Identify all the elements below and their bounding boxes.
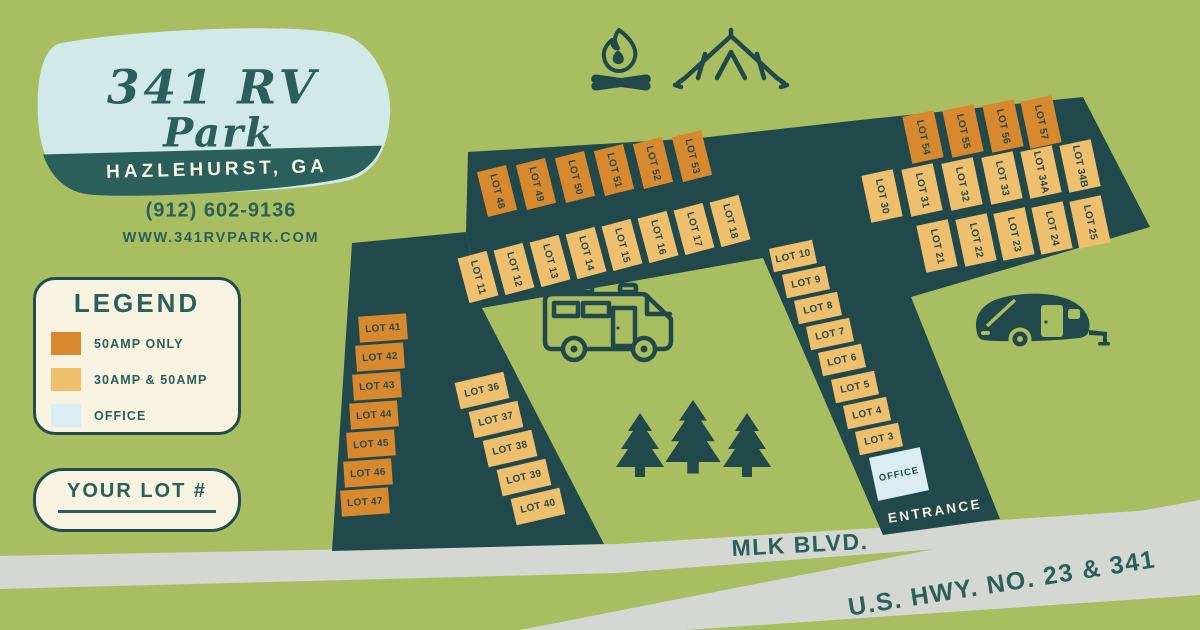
lot-lot-12: LOT 12 [494,243,535,295]
lot-label: LOT 21 [928,227,946,264]
lot-label: LOT 54 [914,118,932,155]
lot-label: LOT 51 [604,151,623,188]
lot-lot-55: LOT 55 [942,104,983,158]
lot-lot-41: LOT 41 [358,313,408,342]
lot-label: LOT 56 [994,107,1012,144]
lot-lot-9: LOT 9 [782,266,830,299]
lot-lot-45: LOT 45 [346,429,396,458]
lot-lot-17: LOT 17 [674,203,715,255]
lot-lot-15: LOT 15 [602,219,643,271]
lot-label: LOT 17 [684,210,704,247]
lot-lot-56: LOT 56 [982,99,1023,153]
lot-label: LOT 44 [356,408,392,421]
lot-label: LOT 55 [954,112,972,149]
lot-label: LOT 52 [643,144,662,181]
lot-lot-5: LOT 5 [831,371,879,404]
lot-label: LOT 31 [913,171,931,208]
lot-lot-21: LOT 21 [916,219,957,273]
lot-label: LOT 3 [863,431,894,448]
lot-label: LOT 4 [851,405,882,422]
lot-lot-54: LOT 54 [902,110,943,164]
lot-label: LOT 18 [720,202,740,239]
lot-lot-34b: LOT 34B [1059,139,1100,193]
lot-lot-32: LOT 32 [941,157,982,211]
lot-lot-50: LOT 50 [555,151,595,203]
lot-label: LOT 43 [359,379,395,392]
lot-label: LOT 36 [463,381,500,400]
lot-label: LOT 50 [565,158,584,195]
lot-label: LOT 6 [826,352,857,369]
lot-label: LOT 38 [491,439,528,458]
lot-lot-3: LOT 3 [855,423,903,456]
lot-lot-18: LOT 18 [710,195,751,247]
lot-lot-25: LOT 25 [1069,195,1110,249]
lot-label: LOT 9 [790,274,821,291]
lot-label: LOT 49 [526,165,545,202]
lot-label: LOT 53 [682,137,701,174]
lot-label: LOT 37 [477,410,514,429]
rv-park-map: 341 RV Park HAZLEHURST, GA (912) 602-913… [0,0,1200,630]
lot-label: LOT 34A [1031,150,1051,195]
lot-lot-40: LOT 40 [511,487,566,525]
lot-lot-49: LOT 49 [516,158,556,210]
lot-lot-30: LOT 30 [861,169,902,223]
lot-lot-42: LOT 42 [355,342,405,371]
lot-lot-23: LOT 23 [993,207,1034,261]
lot-label: LOT 7 [814,326,845,343]
lot-lot-57: LOT 57 [1020,95,1061,149]
lot-label: LOT 12 [504,250,524,287]
lot-label: LOT 42 [362,350,398,363]
lot-label: LOT 14 [576,234,596,271]
lot-label: LOT 57 [1032,103,1050,140]
lot-lot-10: LOT 10 [769,240,817,273]
lot-lot-38: LOT 38 [483,429,538,467]
lot-label: LOT 5 [839,379,870,396]
lot-office: OFFICE [869,447,929,501]
lot-lot-6: LOT 6 [818,344,866,377]
lot-label: LOT 16 [648,218,668,255]
lot-lot-37: LOT 37 [469,400,524,438]
lot-label: LOT 15 [612,226,632,263]
lot-label: LOT 39 [505,468,542,487]
lot-lot-44: LOT 44 [349,400,399,429]
lot-lot-48: LOT 48 [477,165,517,217]
lot-lot-36: LOT 36 [455,371,510,409]
lot-lot-39: LOT 39 [497,458,552,496]
lot-lot-7: LOT 7 [806,318,854,351]
lot-label: LOT 45 [353,437,389,450]
lot-label: LOT 11 [468,259,488,296]
lot-label: LOT 10 [774,247,811,265]
lot-label: LOT 46 [350,466,386,479]
lot-lot-4: LOT 4 [843,397,891,430]
lot-label: LOT 32 [953,165,971,202]
lot-lot-22: LOT 22 [955,213,996,267]
lot-lot-53: LOT 53 [672,130,712,182]
lot-label: OFFICE [878,464,920,483]
lot-label: LOT 48 [487,172,506,209]
lot-label: LOT 47 [347,495,383,508]
lot-label: LOT 41 [365,321,401,334]
lot-label: LOT 8 [802,300,833,317]
lot-label: LOT 23 [1005,215,1023,252]
lot-lot-31: LOT 31 [901,163,942,217]
lot-lot-47: LOT 47 [340,487,390,516]
lot-lot-43: LOT 43 [352,371,402,400]
lot-lot-52: LOT 52 [633,137,673,189]
lot-lot-46: LOT 46 [343,458,393,487]
lot-lot-34a: LOT 34A [1020,145,1061,199]
lots-layer: LOT 48LOT 49LOT 50LOT 51LOT 52LOT 53LOT … [0,0,1200,630]
lot-lot-8: LOT 8 [794,292,842,325]
lot-label: LOT 13 [540,242,560,279]
lot-lot-33: LOT 33 [981,151,1022,205]
lot-label: LOT 33 [993,159,1011,196]
lot-lot-11: LOT 11 [458,251,499,303]
lot-label: LOT 25 [1081,203,1099,240]
lot-label: LOT 34B [1070,144,1090,189]
lot-label: LOT 40 [519,497,556,516]
lot-label: LOT 24 [1043,209,1061,246]
lot-lot-14: LOT 14 [566,227,607,279]
lot-label: LOT 30 [873,177,891,214]
lot-label: LOT 22 [967,221,985,258]
lot-lot-13: LOT 13 [530,235,571,287]
lot-lot-24: LOT 24 [1031,201,1072,255]
lot-lot-16: LOT 16 [638,211,679,263]
lot-lot-51: LOT 51 [594,144,634,196]
